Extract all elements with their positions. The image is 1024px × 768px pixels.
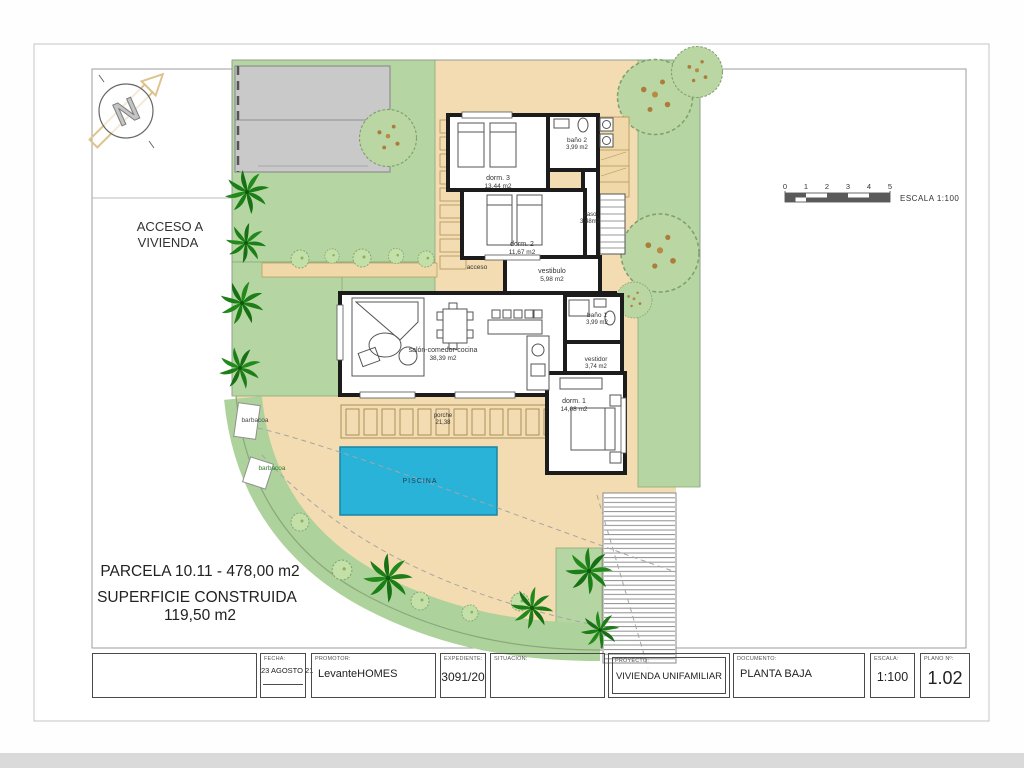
scale-tick-3: 3 xyxy=(846,182,850,191)
divider xyxy=(263,684,303,685)
titleblock-field-plano: PLANO Nº: 1.02 xyxy=(920,653,970,698)
titleblock-label: DOCUMENTO: xyxy=(734,654,864,662)
titleblock-field-blank xyxy=(92,653,257,698)
titleblock-label: EXPEDIENTE: xyxy=(441,654,485,662)
titleblock-field-fecha: FECHA: 23 AGOSTO 21 xyxy=(260,653,306,698)
parcela-text: PARCELA 10.11 - 478,00 m2 xyxy=(100,563,299,580)
scale-tick-5: 5 xyxy=(888,182,892,191)
titleblock-value: 23 AGOSTO 21 xyxy=(261,666,305,675)
scale-tick-2: 2 xyxy=(825,182,829,191)
label-barbacoa-lower: barbacoa xyxy=(258,465,285,472)
label-barbacoa-upper: barbacoa xyxy=(241,417,268,424)
titleblock-label: SITUACION: xyxy=(491,654,604,662)
plan-sheet: ACCESO A VIVIENDA dorm. 3 13,44 m2 baño … xyxy=(0,0,1024,768)
label-bano1-area: 3,99 m2 xyxy=(586,320,608,326)
label-salon: salón-comedor-cocina xyxy=(409,347,478,354)
label-bano2-area: 3,99 m2 xyxy=(566,145,588,151)
exterior-stairs xyxy=(600,194,625,254)
label-porche: porche xyxy=(434,413,453,419)
label-acceso: acceso xyxy=(467,264,488,271)
superficie-text-line2: 119,50 m2 xyxy=(164,607,236,624)
titleblock-label: ESCALA: xyxy=(871,654,914,662)
titleblock-value: 3091/20 xyxy=(441,670,485,684)
titleblock-label: PLANO Nº: xyxy=(921,654,969,662)
titleblock-value: 1:100 xyxy=(871,670,914,684)
access-label-line2: VIVIENDA xyxy=(138,235,199,250)
window-bottom-strip xyxy=(0,753,1024,768)
label-salon-area: 38,39 m2 xyxy=(429,355,456,362)
titleblock-label: PROMOTOR: xyxy=(312,654,435,662)
titleblock-value: LevanteHOMES xyxy=(312,668,435,680)
label-porche-area: 21,38 xyxy=(435,420,451,426)
label-piscina: PISCINA xyxy=(402,478,437,485)
titleblock-field-promotor: PROMOTOR: LevanteHOMES xyxy=(311,653,436,698)
titleblock-value: VIVIENDA UNIFAMILIAR xyxy=(609,671,729,682)
label-dorm1-area: 14,08 m2 xyxy=(560,406,587,413)
label-dorm3-area: 13,44 m2 xyxy=(484,183,511,190)
label-dorm1: dorm. 1 xyxy=(562,398,586,405)
access-label-line1: ACCESO A xyxy=(137,219,204,234)
label-paso: paso xyxy=(583,212,597,218)
titleblock-field-proyecto: PROYECTO: VIVIENDA UNIFAMILIAR xyxy=(608,653,730,698)
label-dorm2-area: 11,67 m2 xyxy=(509,249,536,256)
label-dorm3: dorm. 3 xyxy=(486,175,510,182)
titleblock-value: PLANTA BAJA xyxy=(734,668,864,680)
label-bano1: baño 1 xyxy=(587,312,607,319)
titleblock-field-situacion: SITUACION: xyxy=(490,653,605,698)
label-vestibulo: vestibulo xyxy=(538,268,566,275)
label-vestidor-area: 3,74 m2 xyxy=(585,364,607,370)
label-bano2: baño 2 xyxy=(567,137,587,144)
scale-tick-1: 1 xyxy=(804,182,808,191)
titleblock-field-escala: ESCALA: 1:100 xyxy=(870,653,915,698)
titleblock-field-documento: DOCUMENTO: PLANTA BAJA xyxy=(733,653,865,698)
scale-tick-4: 4 xyxy=(867,182,871,191)
titleblock-label: FECHA: xyxy=(261,654,305,662)
titleblock-value: 1.02 xyxy=(921,668,969,689)
scale-label: ESCALA 1:100 xyxy=(900,194,959,203)
label-vestibulo-area: 5,98 m2 xyxy=(540,276,564,283)
superficie-text-line1: SUPERFICIE CONSTRUIDA xyxy=(97,589,297,606)
label-vestidor: vestidor xyxy=(585,356,609,363)
titleblock-field-expediente: EXPEDIENTE: 3091/20 xyxy=(440,653,486,698)
garden-walkway xyxy=(262,263,437,277)
label-dorm2: dorm. 2 xyxy=(510,241,534,248)
label-paso-area: 3,48m2 xyxy=(580,219,601,225)
scale-tick-0: 0 xyxy=(783,182,787,191)
